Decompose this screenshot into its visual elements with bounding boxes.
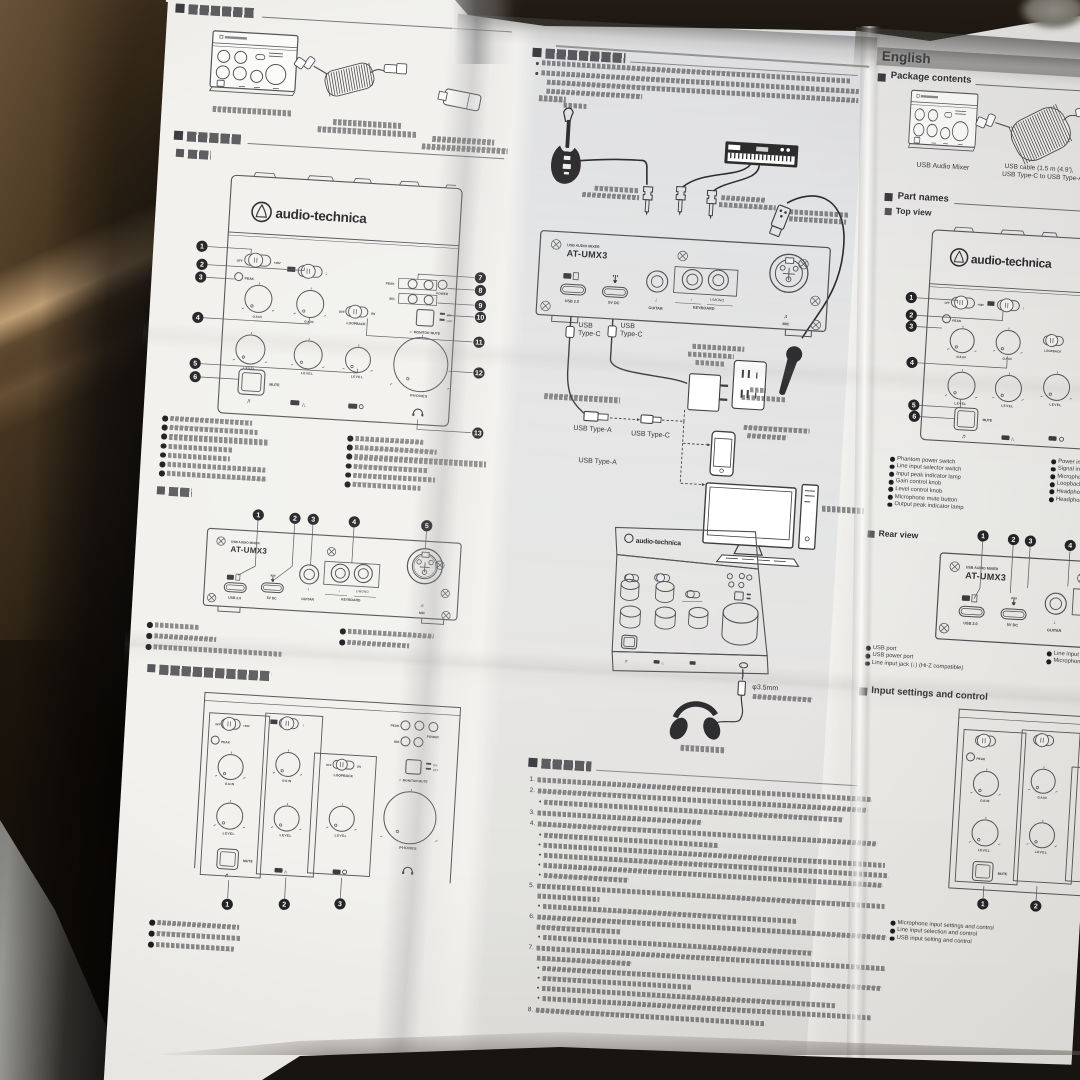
svg-text:↓: ↓ [654,297,657,303]
svg-text:1: 1 [909,295,913,302]
svg-text:AT-UMX3: AT-UMX3 [230,545,267,556]
svg-text:1: 1 [981,901,985,908]
svg-text:♪: ♪ [338,589,340,593]
svg-text:GAIN: GAIN [956,355,966,360]
svg-text:GAIN: GAIN [252,315,262,320]
svg-text:5V DC: 5V DC [1007,623,1019,628]
svg-text:4: 4 [196,315,200,322]
svg-text:3: 3 [1028,538,1032,545]
svg-text:audio-technica: audio-technica [971,252,1053,271]
svg-text:3: 3 [199,274,203,281]
svg-text:ON: ON [371,312,376,316]
svg-text:L/MONO: L/MONO [356,589,369,594]
svg-text:+48V: +48V [273,261,280,265]
svg-text:5: 5 [193,361,197,368]
svg-text:↓: ↓ [307,586,310,592]
svg-text:ON: ON [357,765,361,769]
svg-text:AT-UMX3: AT-UMX3 [965,570,1006,582]
svg-text:GUITAR: GUITAR [301,597,315,602]
svg-text:LEVEL: LEVEL [279,833,291,838]
svg-text:♬: ♬ [783,314,789,320]
svg-text:OFF: OFF [215,722,221,726]
svg-text:LEVEL: LEVEL [978,848,990,853]
svg-text:LEVEL: LEVEL [301,371,313,376]
svg-text:OFF: OFF [339,310,345,314]
svg-text:2: 2 [1034,903,1038,910]
svg-text:3: 3 [311,517,315,524]
svg-text:↓: ↓ [1053,620,1056,626]
svg-text:3: 3 [909,323,913,330]
svg-text:LOOPBACK: LOOPBACK [346,321,366,326]
svg-text:6: 6 [193,374,197,381]
svg-text:+48V: +48V [977,303,984,307]
svg-text:PEAK: PEAK [386,281,396,286]
svg-text:KEYBOARD: KEYBOARD [693,306,715,311]
svg-text:KEYBOARD: KEYBOARD [341,597,361,602]
svg-text:2: 2 [282,902,286,909]
svg-text:2: 2 [1011,537,1015,544]
svg-text:LEVEL: LEVEL [222,831,234,836]
svg-text:2: 2 [200,262,204,269]
svg-text:LOOPBACK: LOOPBACK [1044,349,1062,354]
svg-text:USB 2.0: USB 2.0 [228,596,241,601]
svg-text:1: 1 [225,901,229,908]
svg-text:3: 3 [338,901,342,908]
svg-text:4: 4 [352,519,356,526]
svg-text:AT-UMX3: AT-UMX3 [566,248,607,260]
svg-text:GAIN: GAIN [225,782,235,787]
svg-text:LEVEL: LEVEL [351,375,363,380]
svg-text:5V DC: 5V DC [608,301,620,306]
svg-text:↓: ↓ [302,722,305,727]
svg-text:♬: ♬ [961,434,967,440]
svg-text:♪: ♪ [690,298,692,302]
svg-text:LEVEL: LEVEL [1035,850,1047,855]
svg-text:audio-technica: audio-technica [275,206,368,226]
svg-text:PEAK: PEAK [221,740,231,745]
svg-text:2: 2 [293,516,297,523]
svg-text:1: 1 [256,512,260,519]
svg-text:/↓: /↓ [302,403,306,409]
svg-text:5: 5 [912,402,916,409]
svg-text:LEVEL: LEVEL [1001,404,1013,409]
svg-text:MUTE: MUTE [982,418,993,423]
svg-text:♬: ♬ [246,398,252,404]
svg-text:MUTE: MUTE [243,859,254,864]
svg-text:/↓: /↓ [1011,437,1015,442]
svg-text:USB 2.0: USB 2.0 [963,621,978,626]
svg-text:1: 1 [981,533,985,540]
svg-text:+48V: +48V [243,724,250,728]
svg-text:SIG: SIG [389,297,395,301]
svg-text:GUITAR: GUITAR [1047,628,1062,633]
svg-text:PEAK: PEAK [952,319,962,324]
svg-text:GAIN: GAIN [1037,795,1047,800]
svg-text:LOOPBACK: LOOPBACK [333,773,353,778]
svg-text:OFF: OFF [237,259,243,263]
svg-text:1: 1 [200,243,204,250]
svg-text:↓: ↓ [325,271,328,277]
svg-text:LEVEL: LEVEL [1049,402,1061,407]
svg-text:PEAK: PEAK [244,277,254,282]
svg-text:MIC: MIC [782,322,789,326]
svg-text:L/MONO: L/MONO [710,298,725,303]
svg-text:OFF: OFF [326,763,332,767]
svg-text:MUTE: MUTE [269,383,280,388]
svg-text:♬: ♬ [224,873,230,879]
svg-text:MUTE: MUTE [998,872,1009,877]
svg-text:GAIN: GAIN [980,799,990,804]
svg-text:USB 2.0: USB 2.0 [565,299,580,304]
svg-text:audio-technica: audio-technica [636,538,682,548]
svg-text:5V DC: 5V DC [267,596,278,601]
svg-text:2: 2 [909,312,913,319]
svg-text:6: 6 [912,413,916,420]
svg-text:LEVEL: LEVEL [334,833,346,838]
svg-text:/↓: /↓ [284,869,288,874]
svg-text:PEAK: PEAK [976,757,986,762]
svg-text:OFF: OFF [944,301,950,305]
svg-text:GAIN: GAIN [282,779,292,784]
svg-text:GUITAR: GUITAR [648,306,663,311]
svg-text:4: 4 [1068,543,1072,550]
svg-text:↓: ↓ [1022,305,1025,310]
